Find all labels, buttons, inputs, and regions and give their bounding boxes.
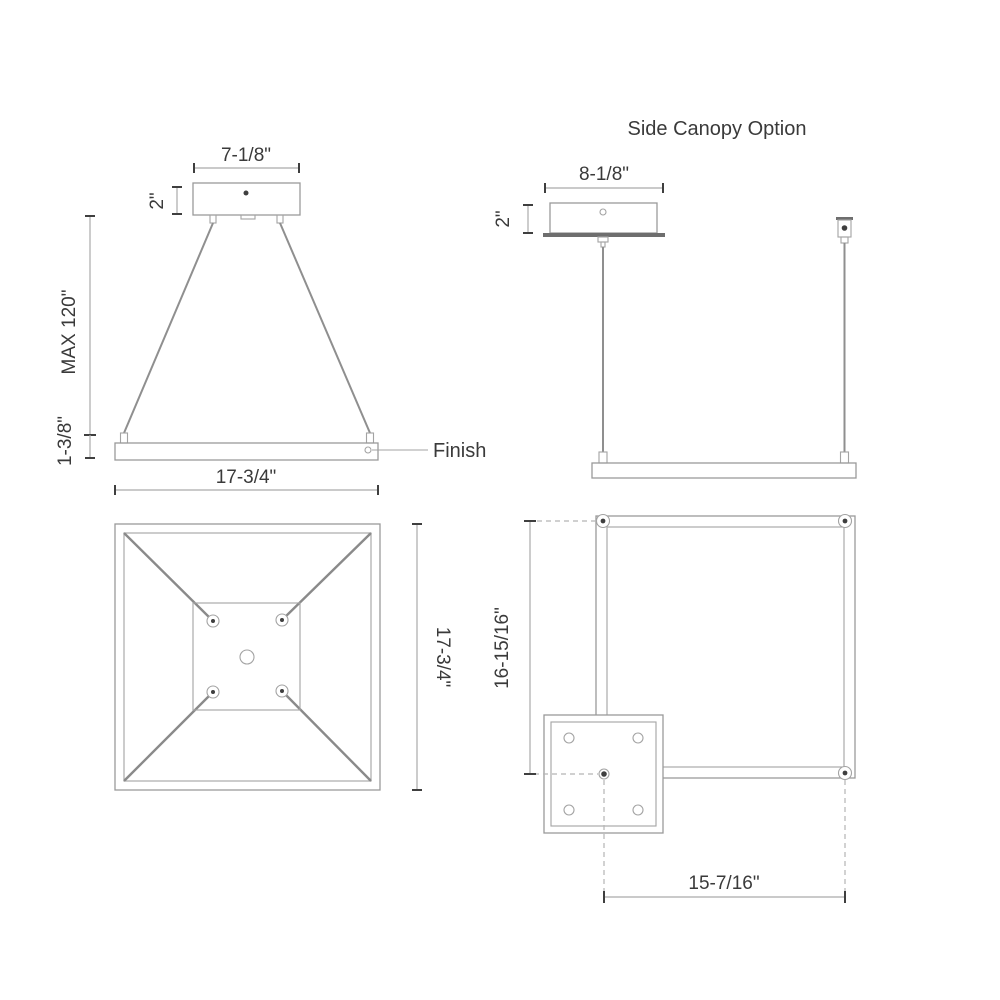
technical-drawing: Finish 7-1/8" 2" MAX 120" 1-3/8" bbox=[0, 0, 1000, 1000]
dim-fixture-width: 17-3/4" bbox=[115, 467, 378, 495]
dim-canopy-height: 2" bbox=[147, 187, 182, 214]
dim-fixture-height: 1-3/8" bbox=[55, 416, 95, 466]
dim-horizontal-offset: 15-7/16" bbox=[604, 873, 845, 903]
bar-connector-right bbox=[367, 433, 374, 443]
suspension-cable-left bbox=[124, 223, 213, 433]
bar-connector-right bbox=[841, 452, 849, 463]
finish-indicator-circle bbox=[365, 447, 371, 453]
anchor-dot bbox=[280, 618, 284, 622]
bar-connector-left bbox=[599, 452, 607, 463]
gripper-tail bbox=[841, 237, 848, 243]
plan-view: 17-3/4" bbox=[115, 524, 453, 790]
cable-hanger-left bbox=[210, 215, 216, 223]
fixture-bar bbox=[115, 443, 378, 460]
dim-fixture-depth: 17-3/4" bbox=[412, 524, 453, 790]
canopy-base-plate bbox=[543, 233, 665, 237]
suspension-cable-right bbox=[280, 223, 370, 433]
anchor-dot bbox=[211, 619, 215, 623]
spec-sheet: Finish 7-1/8" 2" MAX 120" 1-3/8" bbox=[0, 0, 1000, 1000]
side-canopy-view: Side Canopy Option 8-1/8" bbox=[493, 118, 856, 478]
anchor-dot bbox=[211, 690, 215, 694]
dim-label: 2" bbox=[493, 210, 514, 227]
dim-side-canopy-width: 8-1/8" bbox=[545, 164, 663, 193]
side-canopy-outline bbox=[550, 203, 657, 233]
corner-dot bbox=[843, 771, 848, 776]
dim-canopy-width: 7-1/8" bbox=[194, 145, 299, 173]
cable-gripper bbox=[836, 217, 853, 452]
corner-dot bbox=[601, 519, 606, 524]
dim-side-canopy-height: 2" bbox=[493, 205, 533, 233]
fixture-bar-side bbox=[592, 463, 856, 478]
dim-label: 15-7/16" bbox=[688, 873, 759, 894]
finish-label: Finish bbox=[433, 440, 486, 462]
dim-label: 1-3/8" bbox=[55, 416, 76, 466]
side-canopy-plan-view: 16-15/16" 15-7/16" bbox=[492, 515, 855, 904]
dim-label: 17-3/4" bbox=[216, 467, 277, 488]
canopy-center-dot bbox=[601, 771, 607, 777]
anchor-dot bbox=[280, 689, 284, 693]
bar-connector-left bbox=[121, 433, 128, 443]
dim-max-suspension: MAX 120" bbox=[59, 216, 96, 435]
dim-label: 7-1/8" bbox=[221, 145, 271, 166]
dim-label: 8-1/8" bbox=[579, 164, 629, 185]
corner-dot bbox=[843, 519, 848, 524]
cable-hanger-right bbox=[277, 215, 283, 223]
dim-label: 2" bbox=[147, 192, 168, 209]
view-title: Side Canopy Option bbox=[627, 118, 806, 140]
gripper-dot bbox=[842, 225, 848, 231]
front-view: Finish 7-1/8" 2" MAX 120" 1-3/8" bbox=[55, 145, 486, 495]
dim-vertical-offset: 16-15/16" bbox=[492, 521, 536, 774]
dim-label: MAX 120" bbox=[59, 290, 80, 375]
dim-label: 16-15/16" bbox=[492, 607, 513, 689]
canopy-screw-dot bbox=[244, 191, 249, 196]
canopy-cable-fitting bbox=[598, 237, 608, 242]
canopy-outline bbox=[193, 183, 300, 215]
dim-label: 17-3/4" bbox=[432, 627, 453, 688]
canopy-cable-fitting-tip bbox=[601, 242, 605, 247]
side-canopy-screw-circle bbox=[600, 209, 606, 215]
